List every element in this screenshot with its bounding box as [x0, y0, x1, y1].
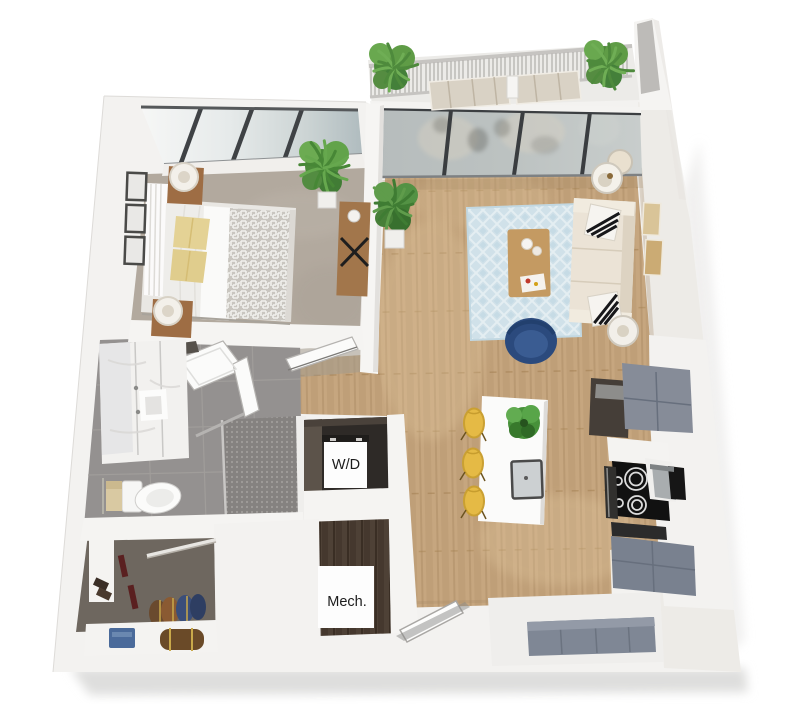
- svg-text:Mech.: Mech.: [327, 594, 367, 610]
- svg-text:W/D: W/D: [332, 457, 360, 473]
